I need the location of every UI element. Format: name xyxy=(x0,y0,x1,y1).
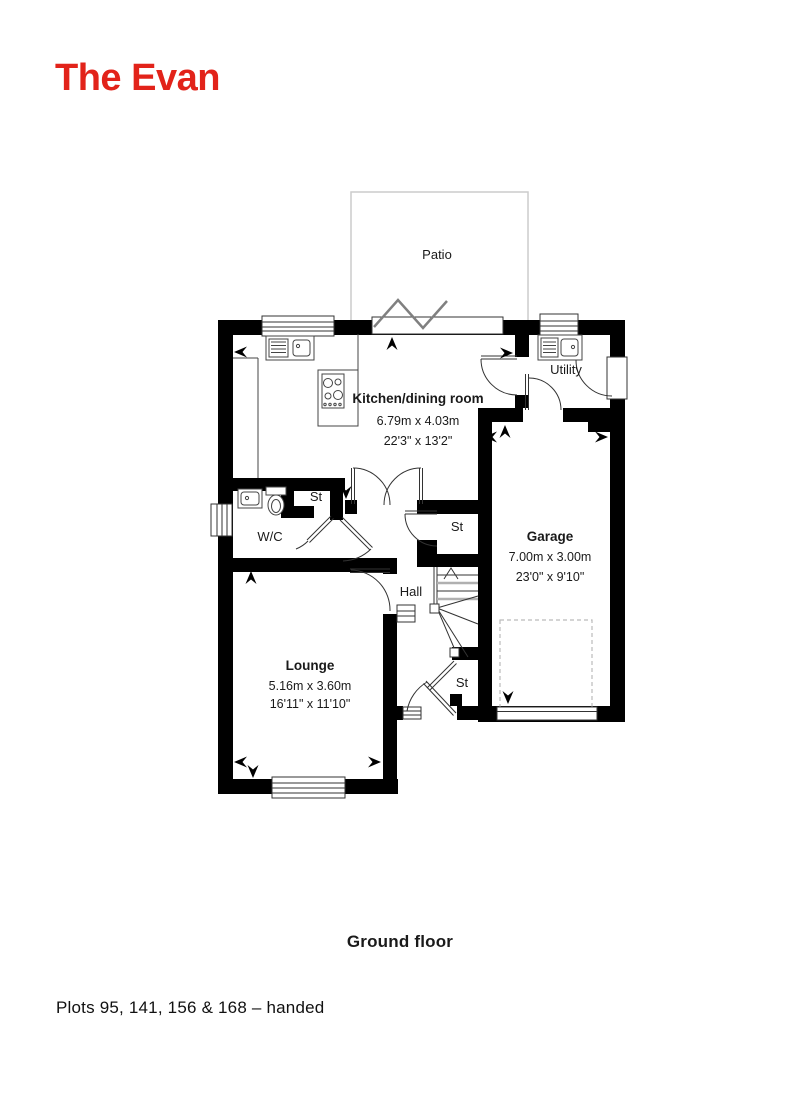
lounge-size-metric: 5.16m x 3.60m xyxy=(269,679,352,693)
wc-door xyxy=(340,518,373,562)
garage-label: Garage xyxy=(527,529,574,544)
utility-door xyxy=(481,356,517,395)
arrow-garage-up xyxy=(500,425,511,438)
radiator xyxy=(397,605,415,622)
kitchen-window xyxy=(262,316,334,336)
plots-note: Plots 95, 141, 156 & 168 – handed xyxy=(56,998,324,1018)
store1-door xyxy=(296,516,334,549)
lounge-label: Lounge xyxy=(286,658,335,673)
arrow-garage-down xyxy=(503,691,514,704)
wc-fixtures xyxy=(238,487,286,515)
arrow-kitchen-right xyxy=(500,348,513,359)
store1-label: St xyxy=(310,489,323,504)
stairs xyxy=(430,567,478,657)
utility-window xyxy=(540,314,578,336)
patio-label: Patio xyxy=(422,247,452,262)
utility-fixtures xyxy=(538,335,582,360)
kitchen-sink-icon xyxy=(266,336,314,360)
hall-label: Hall xyxy=(400,584,423,599)
basin-icon xyxy=(238,489,262,508)
kitchen-size-metric: 6.79m x 4.03m xyxy=(377,414,460,428)
lounge-window xyxy=(272,777,345,798)
page-title: The Evan xyxy=(55,57,220,100)
arrow-kitchen-up xyxy=(387,337,398,350)
arrow-kitchen-left xyxy=(234,347,247,358)
garage-size-metric: 7.00m x 3.00m xyxy=(509,550,592,564)
store2-label: St xyxy=(451,519,464,534)
utility-exterior-door xyxy=(576,357,627,399)
toilet-icon xyxy=(266,487,286,515)
garage-door-zone xyxy=(500,620,592,712)
kitchen-fixtures xyxy=(233,334,358,478)
arrow-lounge-right xyxy=(368,757,381,768)
floor-label: Ground floor xyxy=(0,932,800,952)
wc-side-window xyxy=(211,504,232,536)
front-door-sidelight xyxy=(403,707,421,719)
kitchen-size-imperial: 22'3" x 13'2" xyxy=(384,434,453,448)
arrow-lounge-up xyxy=(246,571,257,584)
double-doors-kitchen xyxy=(352,468,423,505)
hob-icon xyxy=(322,374,344,408)
arrow-lounge-left xyxy=(234,757,247,768)
utility-sink-icon xyxy=(538,335,582,360)
garage-size-imperial: 23'0" x 9'10" xyxy=(516,570,585,584)
stair-break-mark xyxy=(444,568,458,579)
arrow-garage-right xyxy=(595,432,608,443)
store3-label: St xyxy=(456,675,469,690)
kitchen-label: Kitchen/dining room xyxy=(352,391,483,406)
garage-door-group xyxy=(497,620,597,720)
garage-door xyxy=(497,707,597,720)
arrow-lounge-down xyxy=(248,765,259,778)
utility-garage-door xyxy=(526,374,562,410)
lounge-size-imperial: 16'11" x 11'10" xyxy=(270,697,351,711)
wc-label: W/C xyxy=(257,529,282,544)
utility-label: Utility xyxy=(550,362,582,377)
counter-left xyxy=(233,358,258,478)
